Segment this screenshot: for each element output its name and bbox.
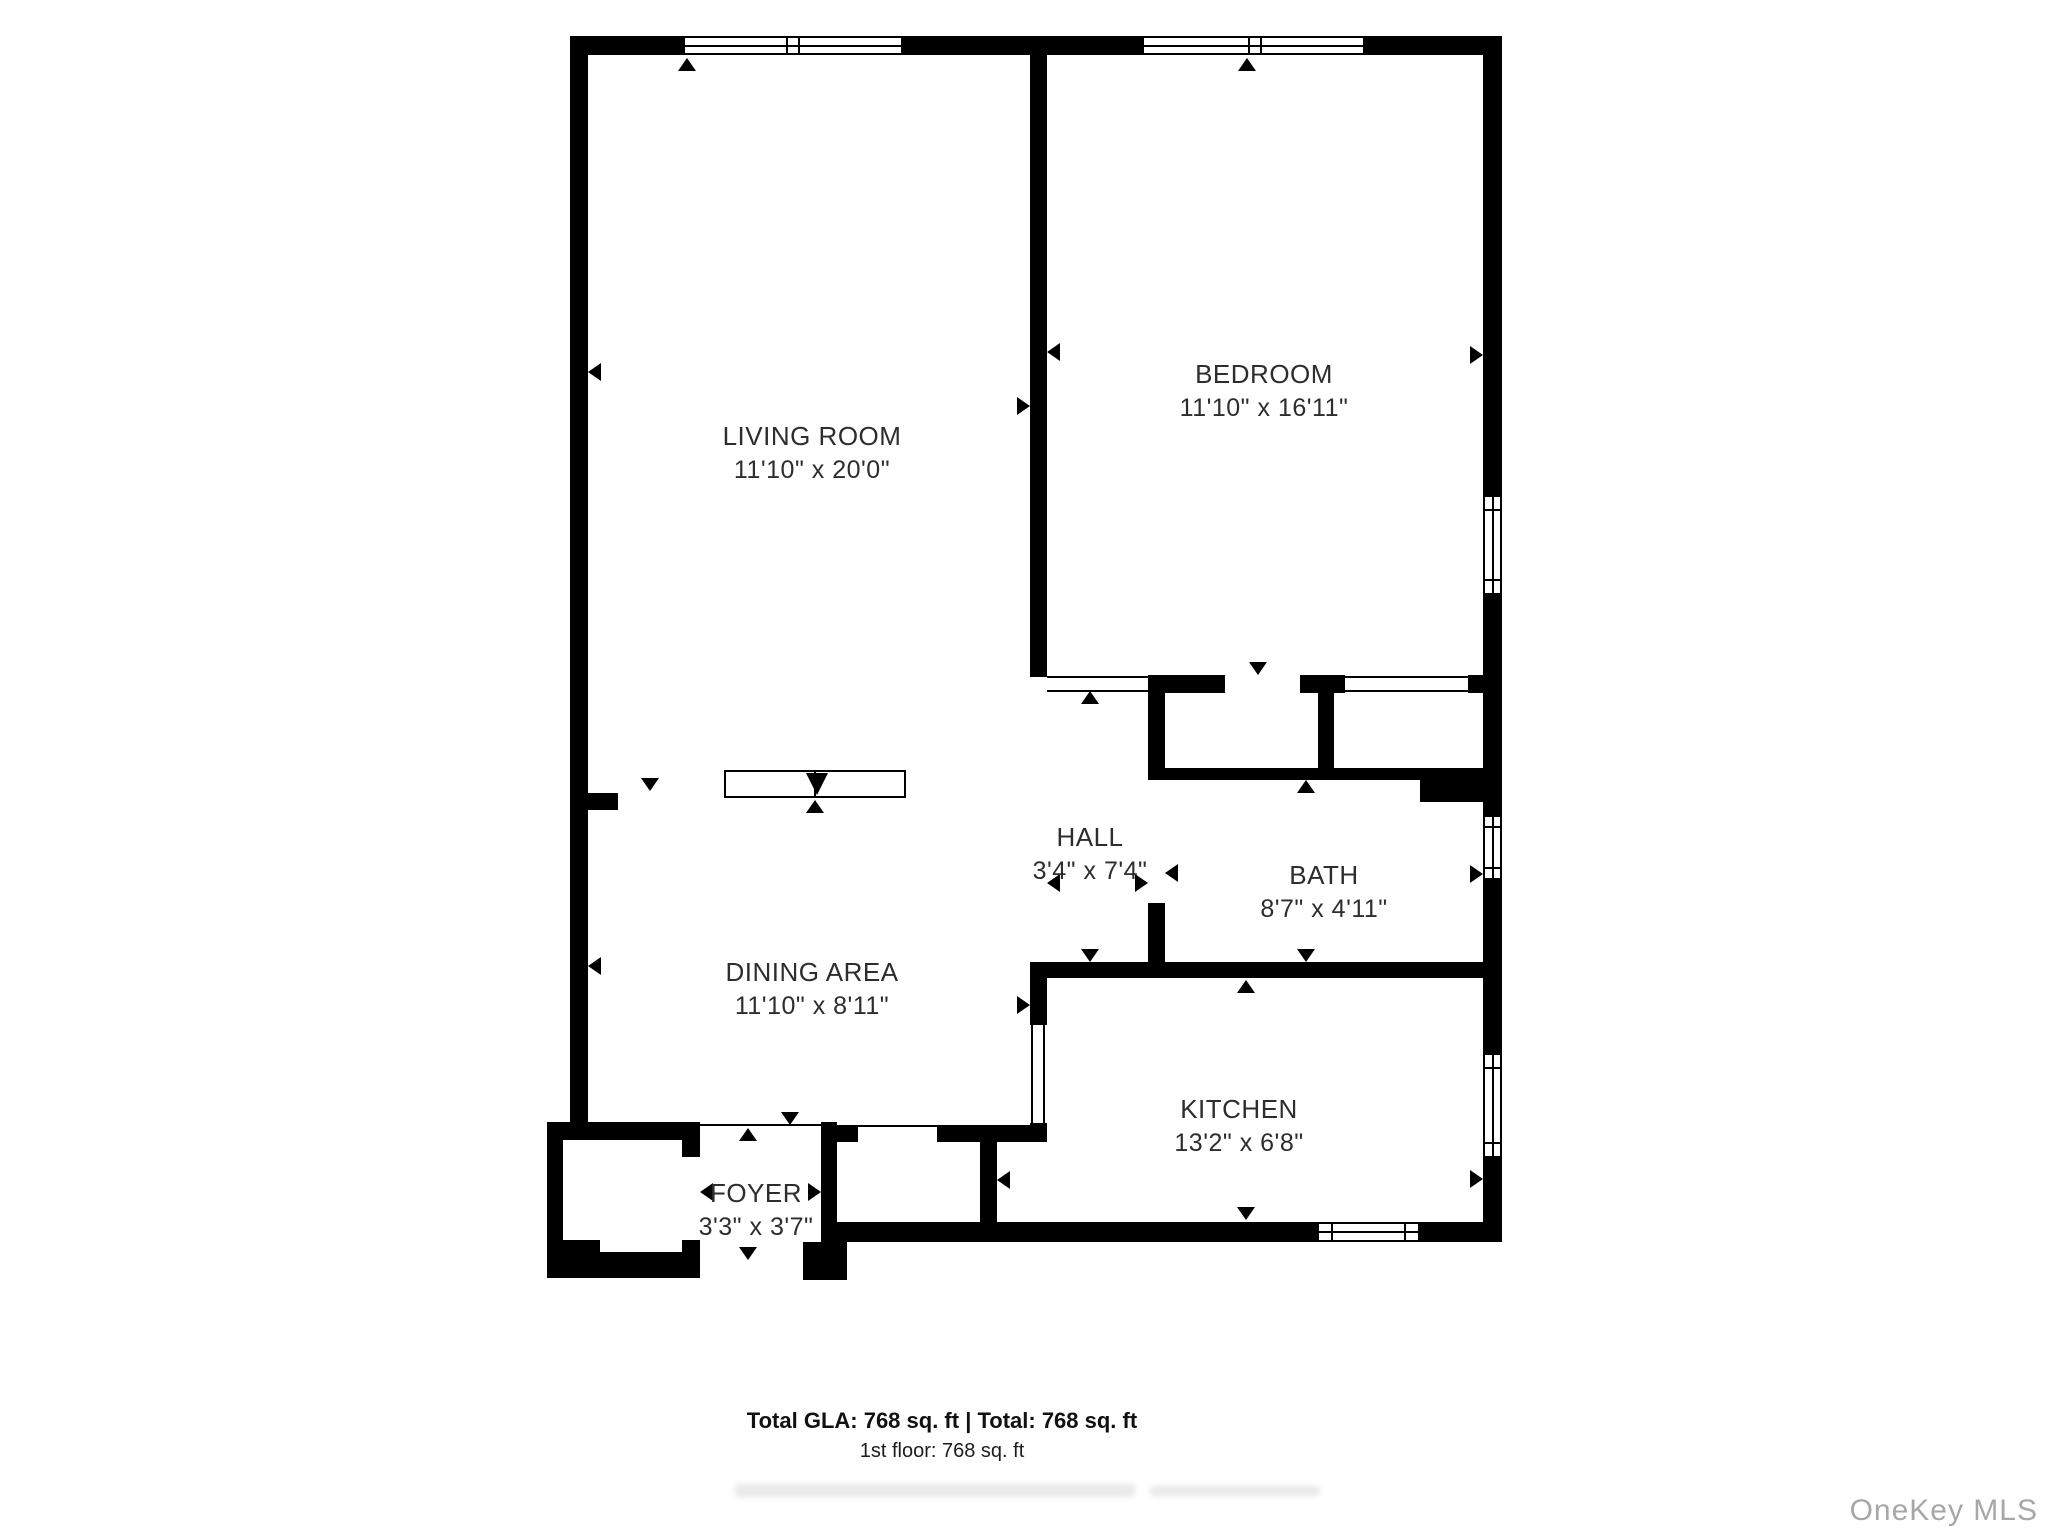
dimension-arrow	[1249, 662, 1267, 675]
room-label-hall: HALL 3'4" x 7'4"	[1033, 820, 1148, 888]
dimension-arrow	[739, 1247, 757, 1260]
dimension-arrow	[1081, 949, 1099, 962]
wall-hall-right	[1148, 675, 1165, 780]
wall-bedroom-bottom	[1300, 675, 1345, 693]
floor-plan-page: LIVING ROOM 11'10" x 20'0" BEDROOM 11'10…	[0, 0, 2048, 1536]
room-label-bedroom: BEDROOM 11'10" x 16'11"	[1180, 357, 1349, 425]
opening-line	[1043, 1025, 1045, 1123]
pass-through-box	[724, 770, 906, 798]
faded-text-remnant	[735, 1484, 1135, 1497]
dimension-arrow	[1470, 865, 1483, 883]
dimension-arrow	[641, 778, 659, 791]
room-dimensions: 11'10" x 20'0"	[723, 453, 902, 487]
window-living-top	[683, 36, 903, 55]
dimension-arrow	[588, 957, 601, 975]
room-dimensions: 11'10" x 16'11"	[1180, 391, 1349, 425]
wall-bedroom-bottom-stub	[1468, 675, 1483, 693]
opening-line	[700, 1124, 821, 1126]
wall-kitchen-bottom	[837, 1222, 1317, 1242]
wall-kitchen-bottom	[1420, 1222, 1502, 1242]
onekey-mls-watermark: OneKey MLS	[1850, 1494, 2038, 1528]
dimension-arrow	[1470, 346, 1483, 364]
dimension-arrow	[588, 363, 601, 381]
window-kitchen-right	[1483, 1053, 1502, 1158]
wall-left	[570, 36, 588, 1122]
area-summary: Total GLA: 768 sq. ft | Total: 768 sq. f…	[747, 1406, 1137, 1466]
dimension-arrow	[1237, 980, 1255, 993]
opening-line	[1031, 1025, 1033, 1123]
opening-line	[1345, 690, 1468, 692]
dimension-arrow	[1047, 343, 1060, 361]
wall-foyer-bottom-block	[803, 1242, 847, 1280]
entry-closet-door-opening	[682, 1157, 700, 1240]
window-bath-right	[1483, 815, 1502, 880]
room-name: DINING AREA	[725, 955, 898, 989]
wall-kitchen-left	[1030, 962, 1047, 1025]
wall-chase	[1420, 768, 1483, 802]
window-bedroom-right	[1483, 495, 1502, 595]
wall-living-bedroom-divider	[1030, 55, 1047, 677]
dimension-arrow	[997, 1171, 1010, 1189]
wall-top-middle	[903, 36, 1142, 55]
dimension-arrow	[1017, 996, 1030, 1014]
dimension-arrow	[1297, 780, 1315, 793]
room-label-living-room: LIVING ROOM 11'10" x 20'0"	[723, 419, 902, 487]
window-bedroom-top	[1142, 36, 1365, 55]
entry-closet-interior	[563, 1140, 682, 1240]
wall-bath-top	[1148, 768, 1420, 780]
wall-top-right	[1365, 36, 1502, 55]
dimension-arrow	[1165, 864, 1178, 882]
room-label-kitchen: KITCHEN 13'2" x 6'8"	[1174, 1092, 1303, 1160]
wall-right-segment	[1483, 880, 1502, 1053]
first-floor-area-text: 1st floor: 768 sq. ft	[747, 1436, 1137, 1466]
dimension-arrow	[1297, 949, 1315, 962]
dimension-arrow	[806, 800, 824, 813]
opening-line	[1345, 676, 1468, 678]
room-name: BATH	[1260, 858, 1387, 892]
window-kitchen-bottom	[1317, 1222, 1420, 1242]
entry-closet-interior	[600, 1240, 682, 1252]
dimension-arrow	[739, 1128, 757, 1141]
opening-line	[858, 1125, 937, 1127]
room-name: HALL	[1033, 820, 1148, 854]
dimension-arrow	[1081, 691, 1099, 704]
dimension-arrow	[781, 1112, 799, 1125]
room-dimensions: 3'4" x 7'4"	[1033, 854, 1148, 888]
faded-text-remnant	[1150, 1486, 1320, 1496]
wall-right-segment	[1483, 595, 1502, 815]
room-dimensions: 13'2" x 6'8"	[1174, 1126, 1303, 1160]
dimension-arrow	[1470, 1170, 1483, 1188]
wall-kitchen-top	[1030, 962, 1483, 978]
dimension-arrow	[678, 58, 696, 71]
room-name: LIVING ROOM	[723, 419, 902, 453]
total-gla-text: Total GLA: 768 sq. ft | Total: 768 sq. f…	[747, 1406, 1137, 1436]
room-label-bath: BATH 8'7" x 4'11"	[1260, 858, 1387, 926]
opening-line	[1047, 676, 1148, 678]
room-label-dining-area: DINING AREA 11'10" x 8'11"	[725, 955, 898, 1023]
room-dimensions: 3'3" x 3'7"	[699, 1210, 814, 1244]
dimension-arrow	[1017, 397, 1030, 415]
down-arrow-icon	[806, 773, 828, 795]
room-label-foyer: FOYER 3'3" x 3'7"	[699, 1176, 814, 1244]
dimension-arrow	[1238, 58, 1256, 71]
wall-closet-divider	[1318, 693, 1334, 770]
room-dimensions: 8'7" x 4'11"	[1260, 892, 1387, 926]
room-dimensions: 11'10" x 8'11"	[725, 989, 898, 1023]
dimension-arrow	[1237, 1207, 1255, 1220]
room-name: KITCHEN	[1174, 1092, 1303, 1126]
room-name: FOYER	[699, 1176, 814, 1210]
wall-dining-stub	[570, 793, 618, 810]
room-name: BEDROOM	[1180, 357, 1349, 391]
wall-right-segment	[1483, 36, 1502, 495]
